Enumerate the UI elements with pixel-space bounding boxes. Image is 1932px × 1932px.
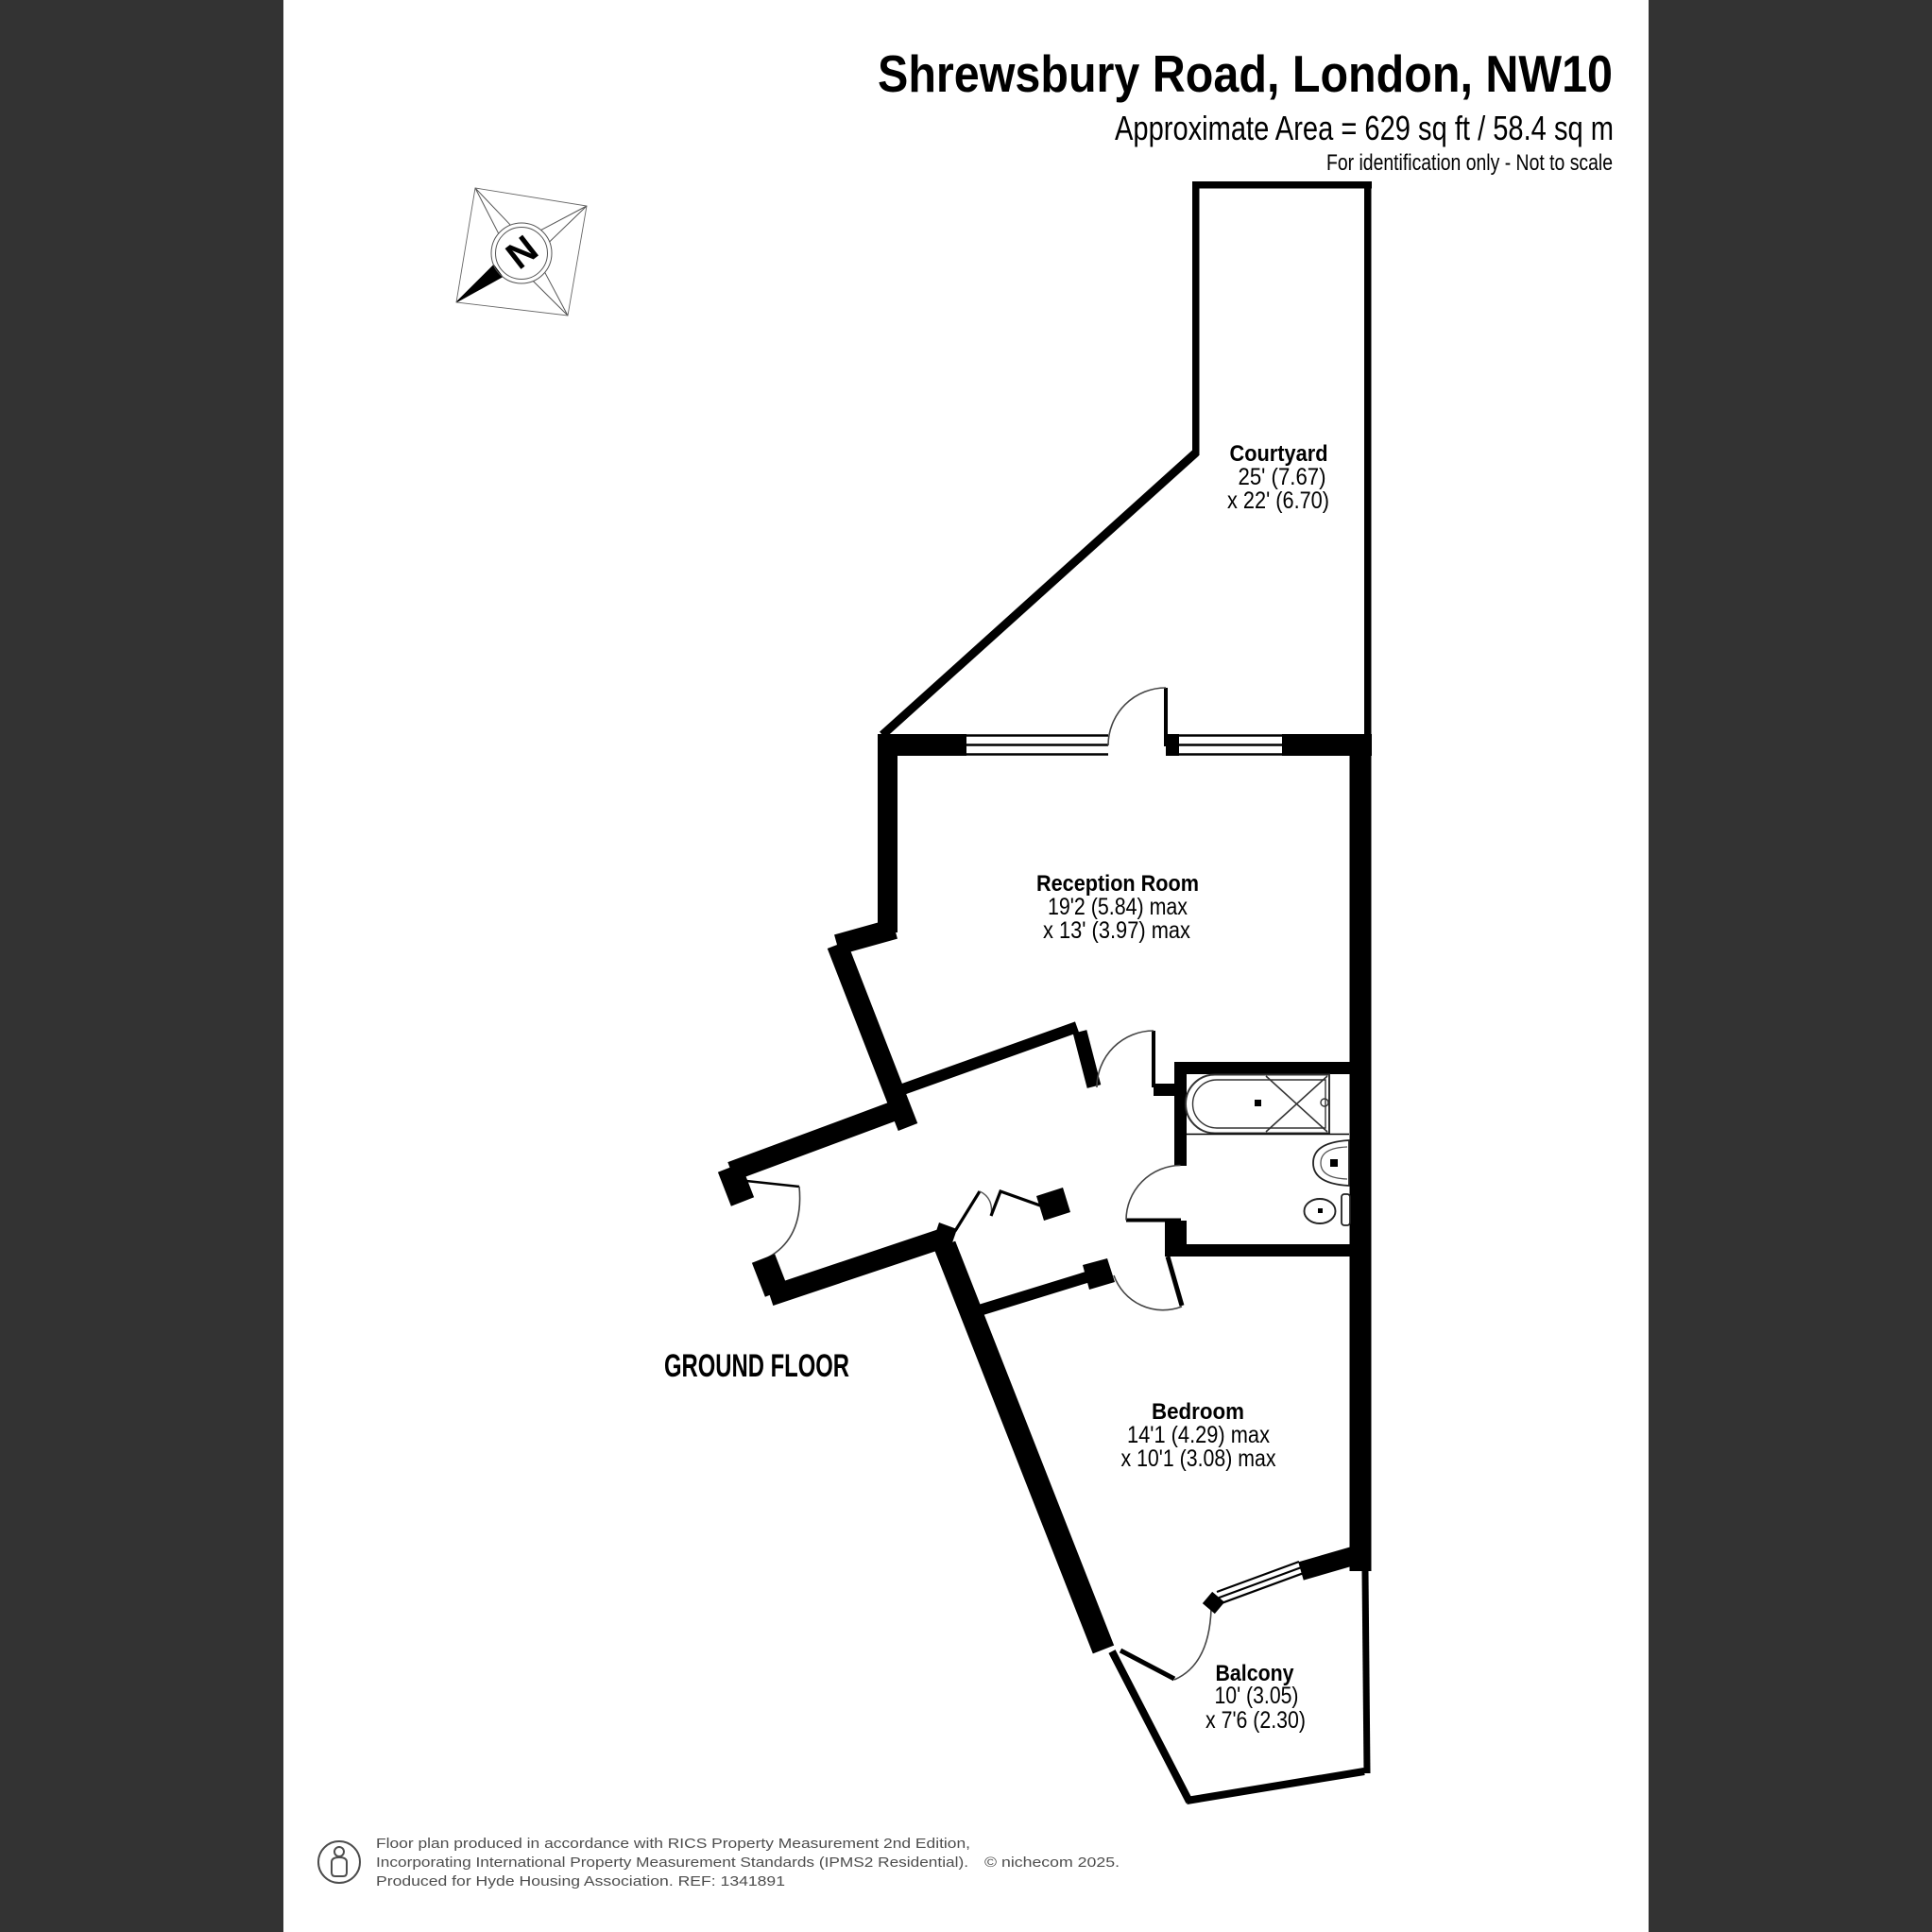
svg-text:x 13' (3.97) max: x 13' (3.97) max bbox=[1043, 917, 1190, 944]
svg-text:Produced for Hyde Housing Asso: Produced for Hyde Housing Association. R… bbox=[376, 1874, 785, 1889]
svg-text:N: N bbox=[499, 228, 546, 277]
svg-text:x 10'1 (3.08) max: x 10'1 (3.08) max bbox=[1121, 1445, 1276, 1472]
svg-text:10' (3.05): 10' (3.05) bbox=[1215, 1683, 1299, 1709]
svg-text:Floor plan produced in accorda: Floor plan produced in accordance with R… bbox=[376, 1837, 970, 1852]
svg-text:19'2 (5.84) max: 19'2 (5.84) max bbox=[1048, 894, 1188, 920]
svg-text:Incorporating International Pr: Incorporating International Property Mea… bbox=[376, 1855, 968, 1871]
svg-text:Courtyard: Courtyard bbox=[1230, 441, 1328, 467]
svg-text:x 7'6 (2.30): x 7'6 (2.30) bbox=[1205, 1707, 1306, 1734]
svg-text:25' (7.67): 25' (7.67) bbox=[1239, 464, 1326, 490]
svg-text:Reception Room: Reception Room bbox=[1036, 871, 1199, 897]
svg-text:x 22' (6.70): x 22' (6.70) bbox=[1227, 487, 1329, 514]
svg-text:14'1 (4.29) max: 14'1 (4.29) max bbox=[1127, 1422, 1270, 1448]
svg-text:Approximate Area = 629 sq ft /: Approximate Area = 629 sq ft / 58.4 sq m bbox=[1115, 109, 1614, 147]
svg-text:For identification only - Not: For identification only - Not to scale bbox=[1326, 150, 1613, 176]
svg-text:GROUND FLOOR: GROUND FLOOR bbox=[664, 1348, 849, 1384]
svg-text:© nichecom 2025.: © nichecom 2025. bbox=[984, 1855, 1120, 1871]
svg-text:Shrewsbury Road, London, NW10: Shrewsbury Road, London, NW10 bbox=[878, 44, 1613, 103]
svg-text:Bedroom: Bedroom bbox=[1152, 1399, 1244, 1425]
